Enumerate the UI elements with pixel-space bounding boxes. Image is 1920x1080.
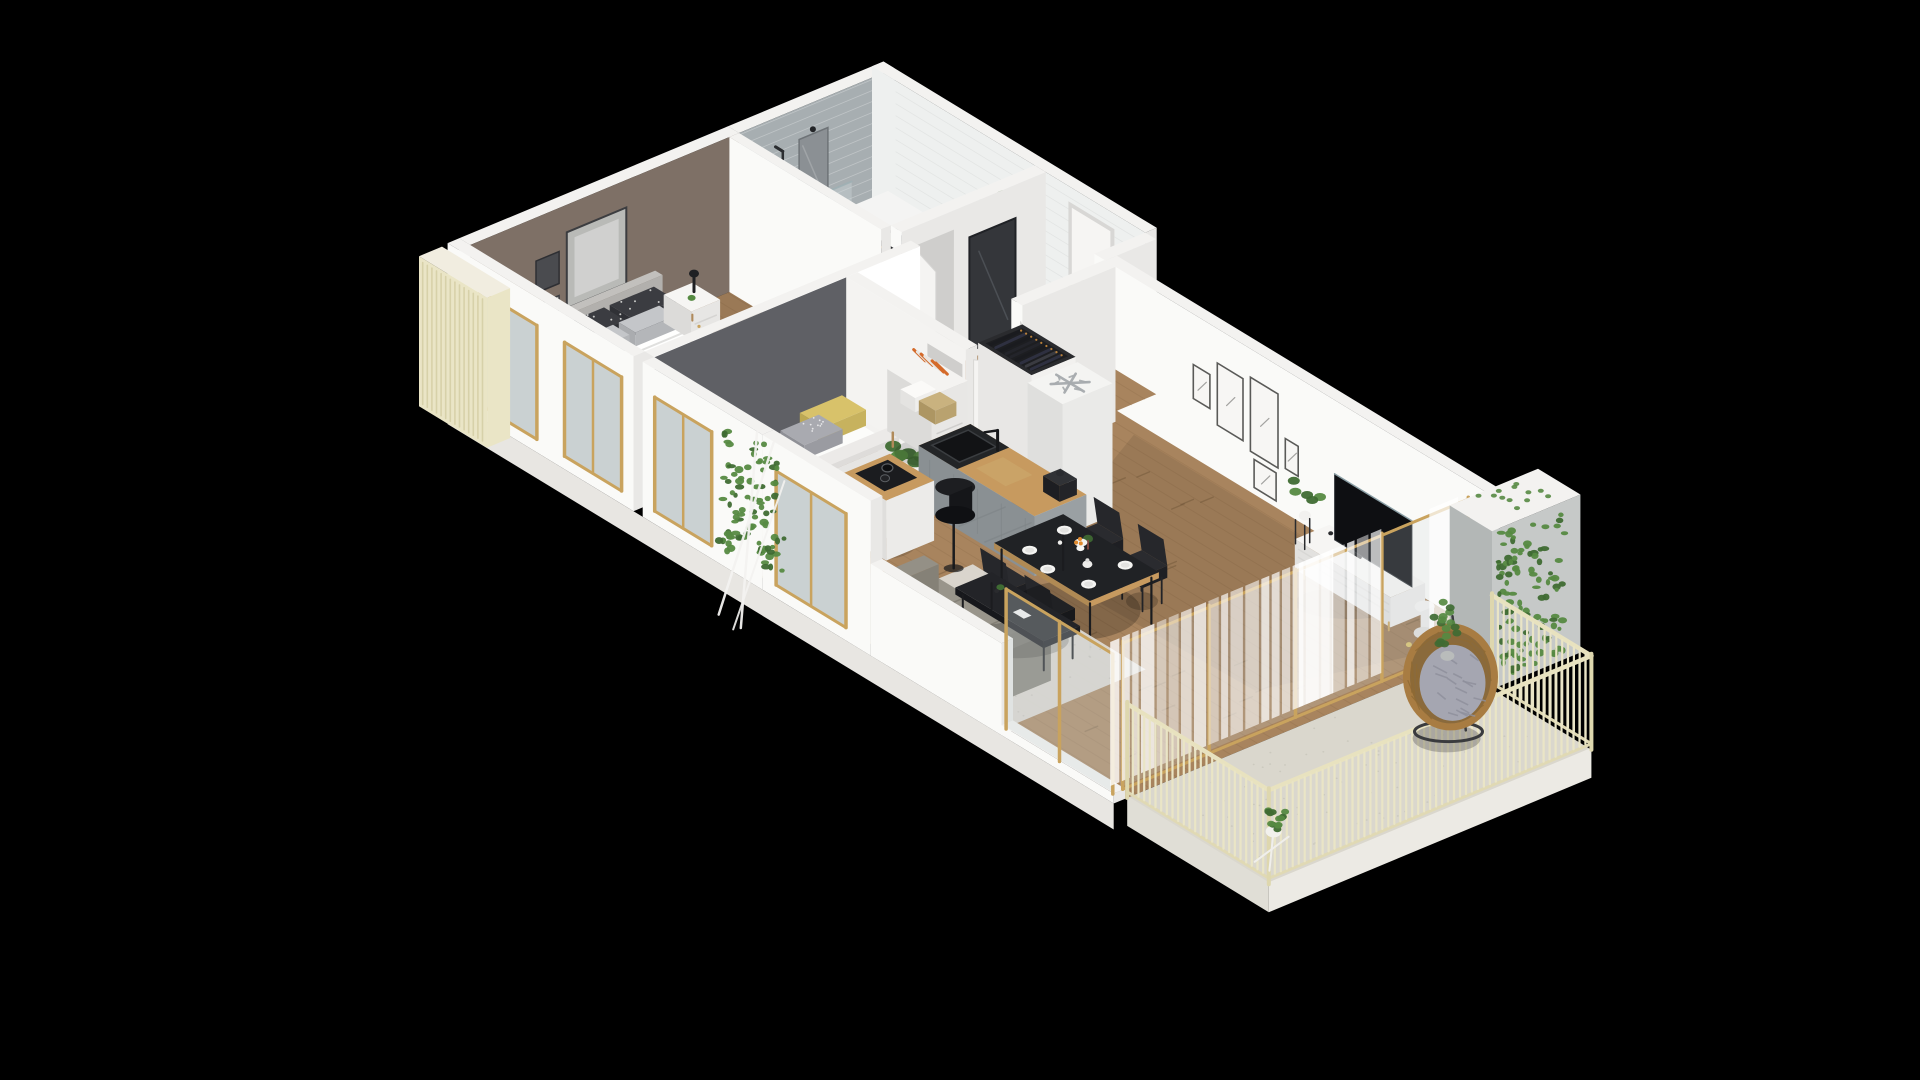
floorplan-stage [0,0,1920,1080]
apartment-isometric-render [0,0,1920,1080]
